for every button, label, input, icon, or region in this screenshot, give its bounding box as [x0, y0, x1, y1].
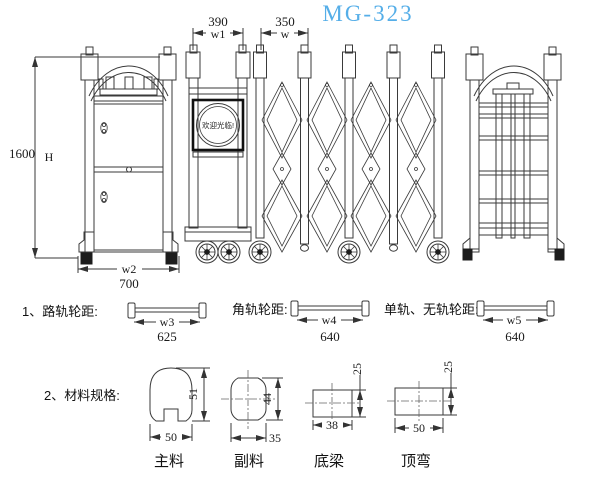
retractable-gate-view: 390 w1 350 w 欢迎光临!: [185, 14, 449, 263]
head-car: 欢迎光临!: [185, 45, 251, 263]
dim-width-50b: 50: [413, 421, 425, 435]
left-post: [85, 80, 94, 252]
inner-grill: [479, 83, 548, 238]
dim-height-var: H: [45, 150, 54, 164]
dim-height-25b: 25: [441, 361, 455, 373]
caster-wheel-right: [166, 253, 177, 264]
lattice-bay: [262, 82, 302, 252]
right-post: [548, 80, 557, 252]
caster-wheel-left: [463, 249, 472, 260]
dim-width-38: 38: [326, 418, 338, 432]
dim-width-50: 50: [165, 430, 177, 444]
base-bracket-left: [79, 232, 94, 252]
dim-height-value: 1600: [9, 146, 35, 161]
drawing-title: MG-323: [322, 1, 413, 26]
dim-height-44: 44: [260, 393, 274, 405]
base-bracket-left: [463, 238, 479, 249]
hinge-bottom: [101, 192, 107, 203]
profile-bottom-beam: 25 38 底梁: [305, 363, 366, 470]
base-bracket-right: [548, 238, 564, 249]
dim-width-var: w2: [122, 262, 137, 276]
right-post: [163, 80, 172, 252]
door-panel: [94, 104, 163, 250]
scissor-lattice: [262, 82, 436, 252]
door-knob: [127, 167, 132, 172]
head-car-wheel-right: [218, 241, 240, 263]
dim-height-51: 51: [186, 388, 200, 400]
dim-width-value: 700: [119, 276, 139, 291]
section1-heading: 1、路轨轮距:: [22, 304, 98, 319]
lattice-bay: [396, 82, 436, 252]
dim-head-width-var: w1: [211, 27, 226, 41]
front-view-end-door: 1600 H: [9, 47, 179, 291]
profile-main-material: 51 50 主料: [150, 368, 210, 470]
dim-value-640b: 640: [505, 329, 525, 344]
lattice-bay: [307, 82, 347, 252]
drawing-sheet: MG-323 1600 H: [0, 0, 600, 480]
lattice-posts: [249, 45, 449, 263]
label-mono-trackless: 单轨、无轨轮距:: [384, 302, 479, 317]
label-top-bend: 顶弯: [401, 453, 431, 470]
dim-bay-width-var: w: [281, 27, 290, 41]
axle-trackless: w5 640: [477, 301, 554, 344]
arch-top: [474, 66, 553, 96]
arch-top: [89, 66, 168, 96]
base-beam: [479, 223, 548, 235]
dim-height-25a: 25: [350, 363, 364, 375]
hinge-top: [101, 123, 107, 134]
post-5: [427, 45, 449, 263]
profile-aux-material: 44 35 副料: [221, 370, 283, 470]
base-bracket-right: [163, 232, 178, 252]
dim-var-w3: w3: [160, 315, 175, 329]
dim-var-w5: w5: [507, 313, 522, 327]
axle-rail: w3 625: [128, 303, 206, 344]
dim-width-35: 35: [269, 431, 281, 445]
head-car-wheel-left: [196, 241, 218, 263]
wheel-spacing-section: 1、路轨轮距: w3 625 角轨轮距: w4 640 单轨、无轨轮距:: [22, 301, 554, 344]
rear-view-end-door: [463, 47, 564, 260]
left-post: [470, 80, 479, 252]
caster-wheel-right: [555, 249, 564, 260]
welcome-sign-text: 欢迎光临!: [202, 120, 234, 130]
label-main-material: 主料: [154, 453, 184, 470]
axle-corner-rail: w4 640: [291, 301, 369, 344]
head-car-base: [185, 227, 251, 241]
dim-value-625: 625: [157, 329, 177, 344]
materials-section: 2、材料规格: 51 50 主料 44 35: [44, 361, 457, 470]
gate-technical-drawing: MG-323 1600 H: [0, 0, 600, 480]
post-1: [249, 45, 271, 263]
section2-heading: 2、材料规格:: [44, 388, 120, 403]
caster-wheel-left: [81, 253, 92, 264]
dim-value-640a: 640: [320, 329, 340, 344]
label-bottom-beam: 底梁: [314, 453, 344, 470]
profile-top-bend: 25 50 顶弯: [387, 361, 457, 470]
dim-var-w4: w4: [322, 313, 337, 327]
label-aux-material: 副料: [234, 453, 264, 470]
label-corner-rail: 角轨轮距:: [232, 302, 288, 317]
lattice-bay: [351, 82, 391, 252]
post-3: [338, 45, 360, 263]
